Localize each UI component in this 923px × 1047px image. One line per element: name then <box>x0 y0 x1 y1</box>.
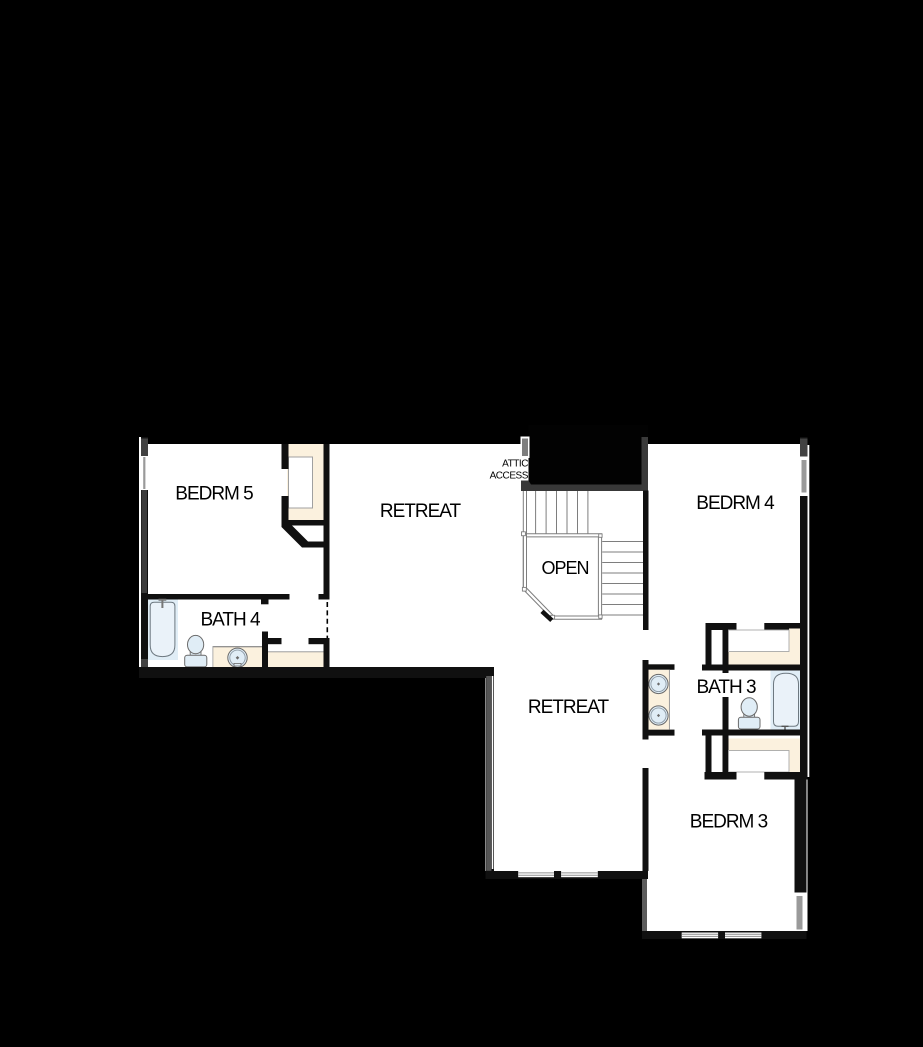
svg-text:BATH 4: BATH 4 <box>200 610 261 631</box>
svg-text:ATTIC: ATTIC <box>502 459 528 470</box>
svg-text:RETREAT: RETREAT <box>380 501 462 522</box>
svg-text:OPEN: OPEN <box>541 558 588 578</box>
svg-text:BEDRM 5: BEDRM 5 <box>175 484 253 505</box>
svg-text:ACCESS: ACCESS <box>490 470 529 481</box>
svg-text:RETREAT: RETREAT <box>528 697 610 718</box>
svg-text:BATH 3: BATH 3 <box>696 677 756 698</box>
svg-text:BEDRM 3: BEDRM 3 <box>690 812 768 833</box>
svg-text:BEDRM 4: BEDRM 4 <box>696 493 775 514</box>
